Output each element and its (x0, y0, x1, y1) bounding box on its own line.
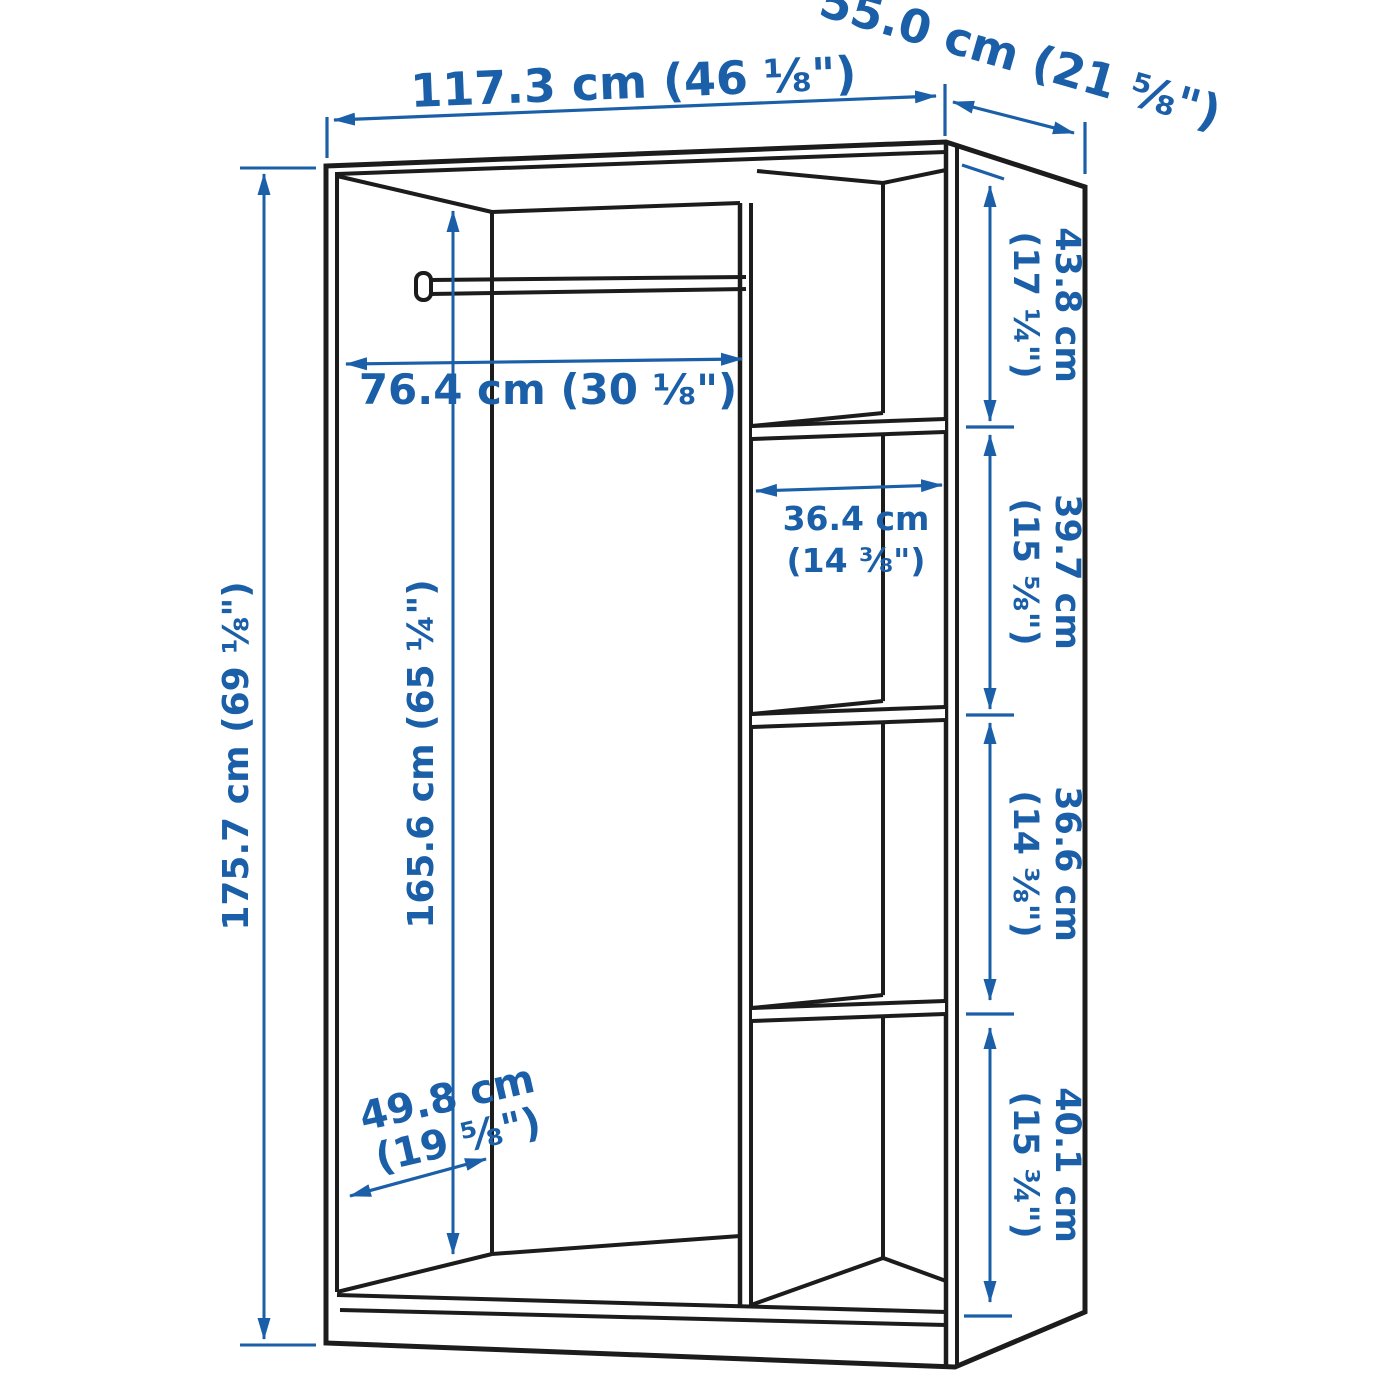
overall-depth-arrow (953, 102, 1074, 133)
compartment-4-label-line1: 40.1 cm (1047, 1087, 1087, 1243)
floor-front-edge (337, 1295, 946, 1312)
compartment-3-label-line2: (14 ⅜") (1005, 790, 1045, 937)
cabinet-floor (337, 1236, 946, 1325)
ceiling-left-junction (337, 176, 492, 212)
clothes-rail-bottom-edge (430, 289, 746, 294)
compartment-2-label-line2: (15 ⅝") (1005, 498, 1045, 645)
overall-width-dimension: 117.3 cm (46 ⅛") (327, 46, 945, 158)
shelf-3 (752, 995, 945, 1021)
floor-left-junction (337, 1254, 492, 1292)
overall-height-label: 175.7 cm (69 ⅛") (216, 581, 257, 930)
clothes-rail-top-edge (430, 277, 746, 280)
floor-back-edge-left (492, 1236, 740, 1254)
compartment-2-label-line1: 39.7 cm (1047, 494, 1087, 650)
overall-depth-dimension: 55.0 cm (21 ⅝") (814, 0, 1227, 174)
clothes-rail (416, 273, 746, 300)
overall-width-label: 117.3 cm (46 ⅛") (409, 46, 857, 118)
right-ceiling-side-edge (883, 170, 946, 183)
shelf-width-label-line2: (14 ⅜") (787, 541, 926, 580)
rail-length-label: 76.4 cm (30 ⅛") (359, 365, 737, 414)
right-ceiling-back-edge (757, 171, 883, 183)
shelf-width-arrow (756, 485, 942, 491)
shelf-1 (752, 413, 945, 439)
compartment-1-label-line2: (17 ¼") (1005, 231, 1045, 378)
compartment-3-label-line1: 36.6 cm (1047, 786, 1087, 942)
rail-length-arrow (346, 359, 742, 364)
clothes-rail-end-cap (416, 273, 431, 300)
shelf-width-dimension: 36.4 cm (14 ⅜") (756, 485, 942, 580)
compartment-tick-top (962, 165, 1004, 179)
wardrobe-dimension-diagram: 117.3 cm (46 ⅛") 55.0 cm (21 ⅝") 175.7 c… (0, 0, 1400, 1400)
front-rail-bottom-edge (340, 1310, 946, 1325)
interior-depth-dimension: 49.8 cm (19 ⅝") (350, 1056, 545, 1196)
compartment-1-label-line1: 43.8 cm (1047, 227, 1087, 383)
floor-right-junction (883, 1258, 946, 1281)
compartment-4-label-line2: (15 ¾") (1005, 1091, 1045, 1238)
compartment-dimensions: 43.8 cm (17 ¼") 39.7 cm (15 ⅝") 36.6 cm … (962, 165, 1087, 1316)
rail-length-dimension: 76.4 cm (30 ⅛") (346, 359, 742, 414)
shelf-width-label-line1: 36.4 cm (783, 499, 930, 538)
overall-height-dimension: 175.7 cm (69 ⅛") (216, 168, 316, 1345)
floor-partition-junction (751, 1258, 883, 1305)
ceiling-back-edge (492, 203, 740, 212)
shelf-2 (752, 701, 945, 727)
interior-height-label: 165.6 cm (65 ¼") (401, 579, 442, 928)
